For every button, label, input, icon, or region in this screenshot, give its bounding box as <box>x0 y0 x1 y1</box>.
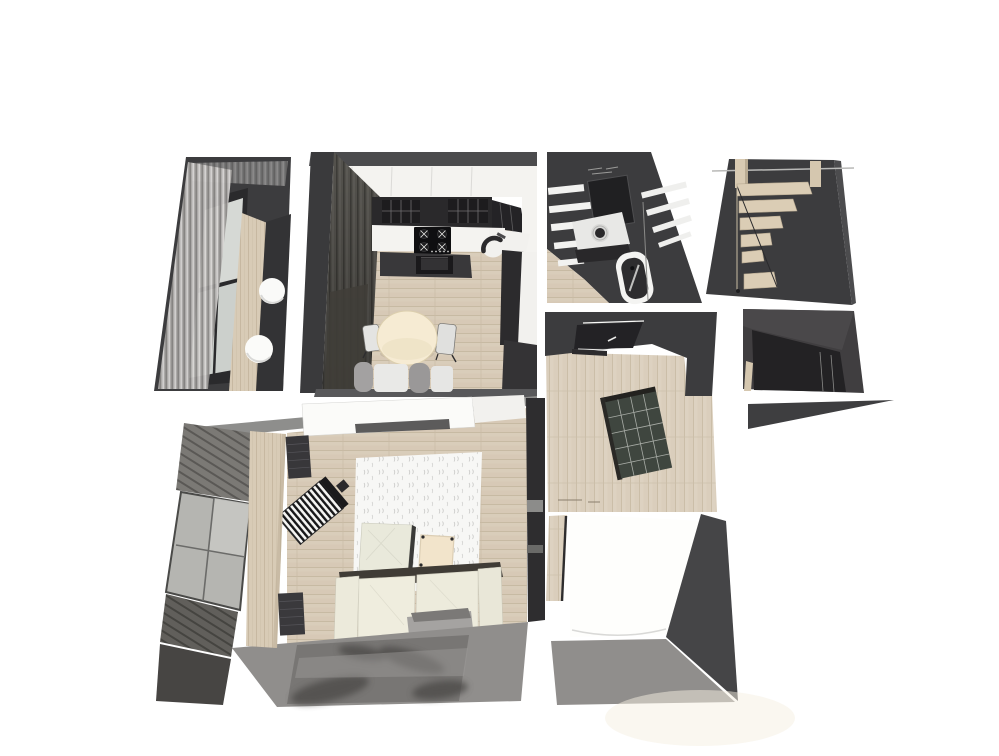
oven <box>416 256 453 274</box>
dark-rug <box>287 635 469 710</box>
balcony-glass-pane <box>209 498 250 558</box>
stair-floor-dark <box>706 159 852 305</box>
ottoman <box>359 523 416 574</box>
sofa-armrest <box>478 567 503 634</box>
room-hallway <box>545 312 717 512</box>
chair-back-near <box>354 362 408 392</box>
floorplan-render <box>0 0 999 756</box>
hallway-door <box>574 322 643 349</box>
burner-icon <box>420 243 429 252</box>
room-kitchen <box>300 152 537 397</box>
room-bathroom <box>547 152 702 307</box>
sofa-cushion <box>358 576 415 637</box>
stair-newel <box>736 289 740 293</box>
room-living <box>156 395 545 710</box>
cooktop <box>414 227 451 254</box>
balcony-slat-wall-upper <box>176 423 258 502</box>
light-glow <box>605 690 795 746</box>
kitchen-corner-dark-block <box>502 340 537 391</box>
shutter-panel <box>286 435 312 479</box>
room-upper-balcony <box>154 157 291 391</box>
room-staircase <box>706 159 856 305</box>
table-edge-shade <box>382 338 432 360</box>
shadow-triangle <box>748 400 894 429</box>
glass-cabinet <box>382 200 420 223</box>
tv-unit-shelf <box>527 500 543 512</box>
burner-icon <box>420 230 429 239</box>
stair-post <box>810 161 821 187</box>
vanity-sink <box>591 224 609 242</box>
burner-icon <box>438 230 447 239</box>
sofa-armrest <box>334 576 359 644</box>
tv-unit-shelf <box>527 545 543 553</box>
play-mat <box>419 535 454 569</box>
shutter-panel <box>278 592 305 635</box>
glass-cabinet <box>448 199 488 223</box>
room-bedroom <box>546 514 795 746</box>
render-canvas <box>0 0 999 756</box>
burner-icon <box>438 243 447 252</box>
room-wardrobe-nook <box>743 309 894 429</box>
